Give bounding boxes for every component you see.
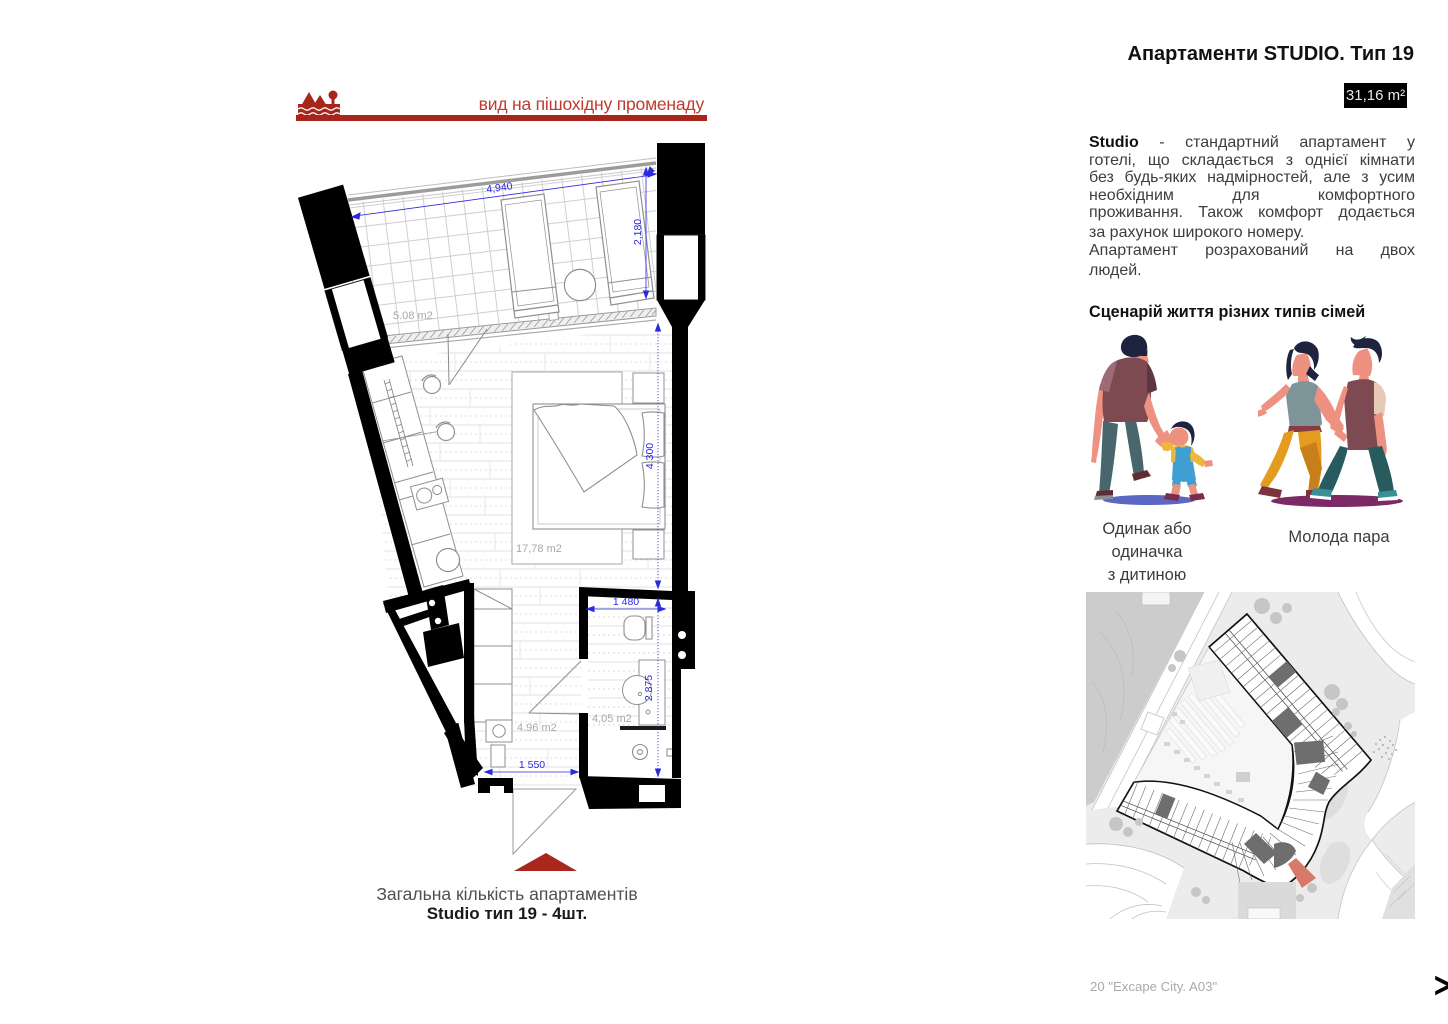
svg-text:4.96 m2: 4.96 m2 <box>517 722 557 734</box>
svg-text:1 550: 1 550 <box>519 759 545 771</box>
svg-text:2,180: 2,180 <box>632 219 644 245</box>
svg-text:4,05 m2: 4,05 m2 <box>592 713 632 725</box>
svg-text:2 875: 2 875 <box>643 675 655 701</box>
svg-text:5.08 m2: 5.08 m2 <box>393 310 433 322</box>
svg-text:4 300: 4 300 <box>644 443 656 469</box>
svg-text:17,78 m2: 17,78 m2 <box>516 543 562 555</box>
svg-text:1 480: 1 480 <box>613 596 639 608</box>
